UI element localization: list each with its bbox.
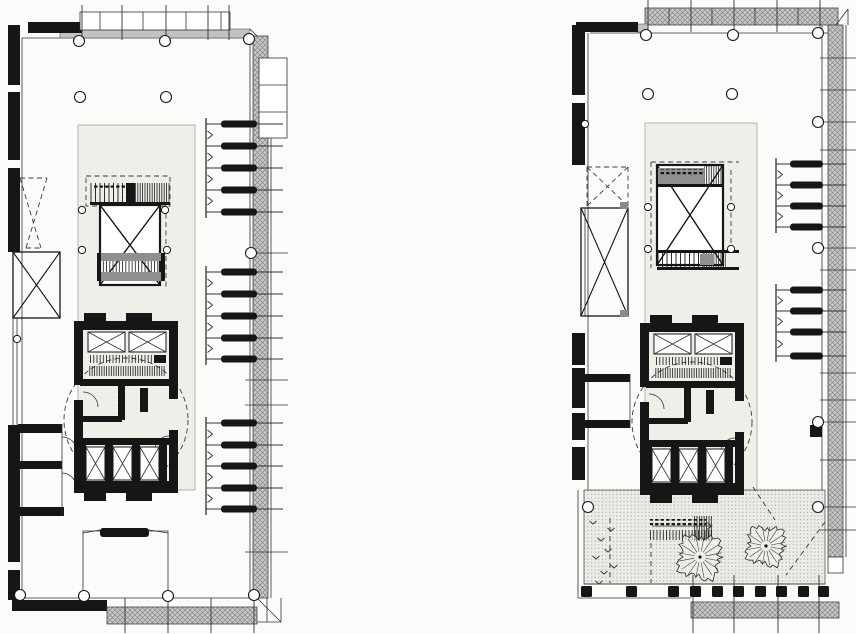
- column-marker: [813, 28, 824, 39]
- column-marker: [643, 89, 654, 100]
- chair-mark: [208, 153, 213, 161]
- chair-mark: [208, 279, 213, 287]
- desk: [790, 161, 823, 168]
- top-facade-band: [645, 8, 838, 25]
- planter-block: [776, 586, 787, 597]
- desk: [221, 485, 257, 492]
- desk: [221, 356, 257, 363]
- chair-mark: [208, 430, 213, 438]
- column-marker: [644, 245, 651, 252]
- planter-block: [798, 586, 809, 597]
- chair-mark: [208, 197, 213, 205]
- wall-segment: [8, 168, 20, 252]
- plans-canvas: [0, 0, 856, 634]
- desk: [221, 121, 257, 128]
- floor-plan-left: [8, 5, 288, 633]
- top-balcony-band: [80, 12, 230, 30]
- chair-mark: [208, 345, 213, 353]
- chair-mark: [778, 171, 783, 179]
- column-marker: [581, 120, 588, 127]
- desk: [221, 209, 257, 216]
- desk: [221, 420, 257, 427]
- desk: [221, 313, 257, 320]
- column-marker: [244, 34, 255, 45]
- column-marker: [644, 203, 651, 210]
- desk: [221, 291, 257, 298]
- wall-segment: [28, 22, 82, 33]
- column-marker: [78, 206, 85, 213]
- column-marker: [163, 591, 174, 602]
- chair-mark: [778, 192, 783, 200]
- column-marker: [813, 243, 824, 254]
- dashed-shaft: [587, 167, 628, 206]
- desk: [790, 203, 823, 210]
- column-marker: [813, 117, 824, 128]
- chair-mark: [778, 213, 783, 221]
- desk: [790, 353, 823, 360]
- planter-block: [755, 586, 766, 597]
- chair-mark: [208, 452, 213, 460]
- chair-mark: [778, 297, 783, 305]
- chair-mark: [208, 473, 213, 481]
- bottom-facade-band: [107, 607, 257, 624]
- floor-plan-right: [572, 0, 856, 633]
- column-marker: [641, 30, 652, 41]
- wall-segment: [572, 413, 585, 440]
- column-marker: [813, 502, 824, 513]
- column-marker: [727, 89, 738, 100]
- desk: [221, 165, 257, 172]
- wall-segment: [8, 25, 20, 85]
- column-marker: [728, 30, 739, 41]
- column-marker: [74, 36, 85, 47]
- planter-block: [668, 586, 679, 597]
- corner-detail: [257, 598, 281, 622]
- tree-center: [698, 555, 701, 558]
- planter-block: [690, 586, 701, 597]
- facade-mullion-band: [828, 25, 843, 557]
- wall-segment: [572, 333, 585, 365]
- column-marker: [246, 248, 257, 259]
- column-marker: [163, 246, 170, 253]
- wall-segment: [572, 25, 585, 95]
- column-marker: [15, 590, 26, 601]
- column-marker: [78, 246, 85, 253]
- bottom-facade-band: [691, 602, 839, 618]
- desk: [221, 187, 257, 194]
- column-marker: [79, 591, 90, 602]
- tree-center: [764, 544, 767, 547]
- wall-segment: [576, 22, 638, 32]
- column-marker: [160, 36, 171, 47]
- column-marker: [75, 92, 86, 103]
- entry-canopy: [83, 528, 168, 597]
- column-marker: [727, 203, 734, 210]
- wall-segment: [572, 447, 585, 480]
- chair-mark: [778, 318, 783, 326]
- facade-cells: [259, 58, 287, 138]
- desk: [790, 329, 823, 336]
- desk: [221, 143, 257, 150]
- scanned-page: [0, 0, 856, 634]
- desk: [221, 506, 257, 513]
- planter-block: [733, 586, 744, 597]
- planter-block: [818, 586, 829, 597]
- planter-block: [712, 586, 723, 597]
- wall-segment: [8, 425, 20, 562]
- desk: [790, 224, 823, 231]
- planter-block: [581, 586, 592, 597]
- chair-mark: [208, 301, 213, 309]
- wall-segment: [12, 600, 107, 611]
- desk: [790, 308, 823, 315]
- chair-mark: [778, 340, 783, 348]
- dashed-shaft: [20, 178, 47, 248]
- desk: [221, 442, 257, 449]
- desk: [790, 182, 823, 189]
- desk: [221, 335, 257, 342]
- stair-lower: [97, 253, 165, 281]
- chair-mark: [208, 175, 213, 183]
- wall-segment: [8, 92, 20, 160]
- desk: [221, 463, 257, 470]
- column-marker: [727, 245, 734, 252]
- planter-block: [626, 586, 637, 597]
- chair-mark: [208, 323, 213, 331]
- desk: [221, 269, 257, 276]
- column-marker: [13, 335, 20, 342]
- column-marker: [249, 590, 260, 601]
- wall-segment: [572, 368, 585, 408]
- column-marker: [583, 502, 594, 513]
- chair-mark: [208, 495, 213, 503]
- column-marker: [161, 206, 168, 213]
- wall-segment: [572, 103, 585, 165]
- column-marker: [813, 417, 824, 428]
- column-marker: [161, 92, 172, 103]
- desk: [790, 287, 823, 294]
- chair-mark: [208, 131, 213, 139]
